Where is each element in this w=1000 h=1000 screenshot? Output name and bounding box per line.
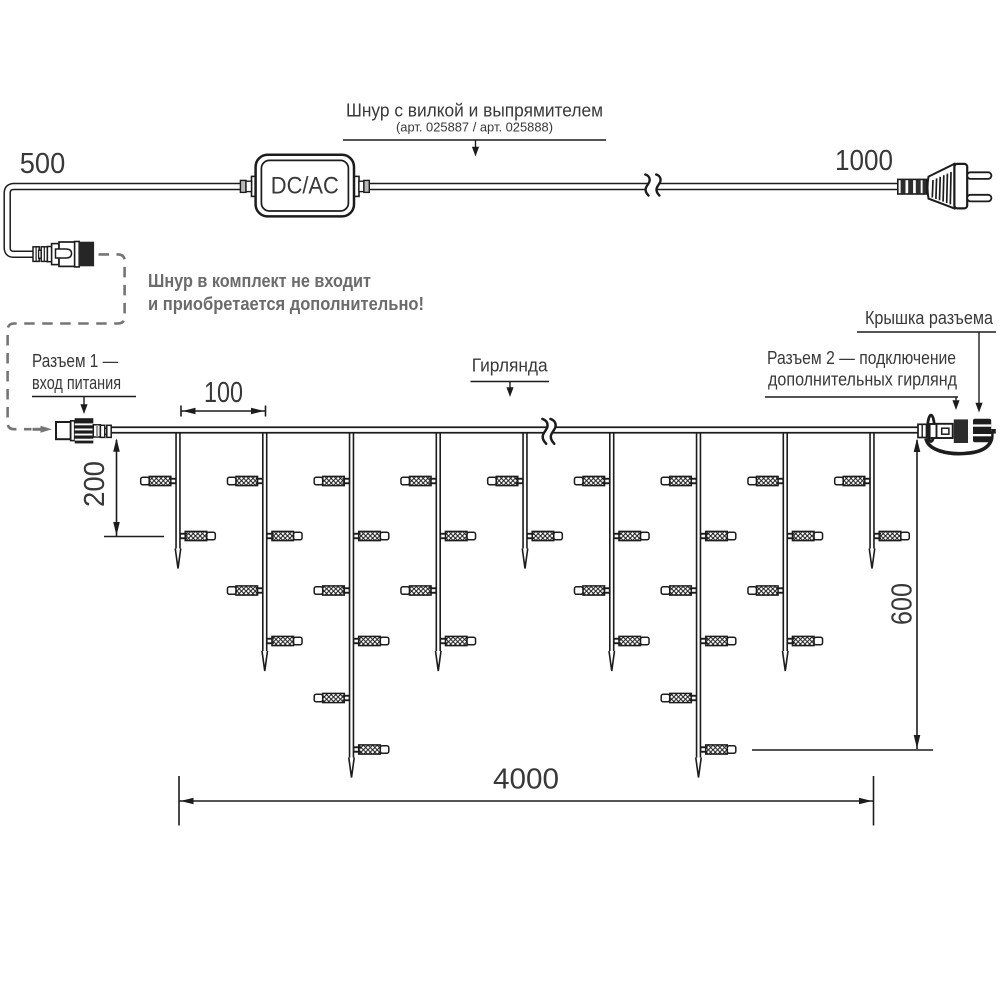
svg-text:1000: 1000 [835, 145, 893, 177]
svg-text:Шнур в комплект не входит: Шнур в комплект не входит [148, 271, 371, 291]
svg-text:100: 100 [204, 377, 243, 409]
svg-text:Разъем 1 —: Разъем 1 — [32, 351, 118, 371]
svg-text:Разъем 2 — подключение: Разъем 2 — подключение [767, 348, 956, 368]
svg-text:дополнительных гирлянд: дополнительных гирлянд [768, 370, 957, 390]
svg-text:(арт. 025887 / арт. 025888): (арт. 025887 / арт. 025888) [396, 121, 553, 135]
svg-text:Гирлянда: Гирлянда [472, 356, 549, 376]
svg-text:и приобретается дополнительно!: и приобретается дополнительно! [148, 294, 424, 314]
svg-text:500: 500 [20, 148, 66, 180]
svg-text:Крышка разъема: Крышка разъема [865, 308, 994, 328]
svg-text:Шнур с вилкой и выпрямителем: Шнур с вилкой и выпрямителем [346, 101, 603, 121]
svg-text:вход питания: вход питания [32, 373, 121, 393]
svg-text:4000: 4000 [493, 764, 559, 796]
svg-text:600: 600 [887, 583, 919, 625]
svg-text:DC/AC: DC/AC [271, 173, 339, 200]
svg-text:200: 200 [79, 461, 111, 507]
